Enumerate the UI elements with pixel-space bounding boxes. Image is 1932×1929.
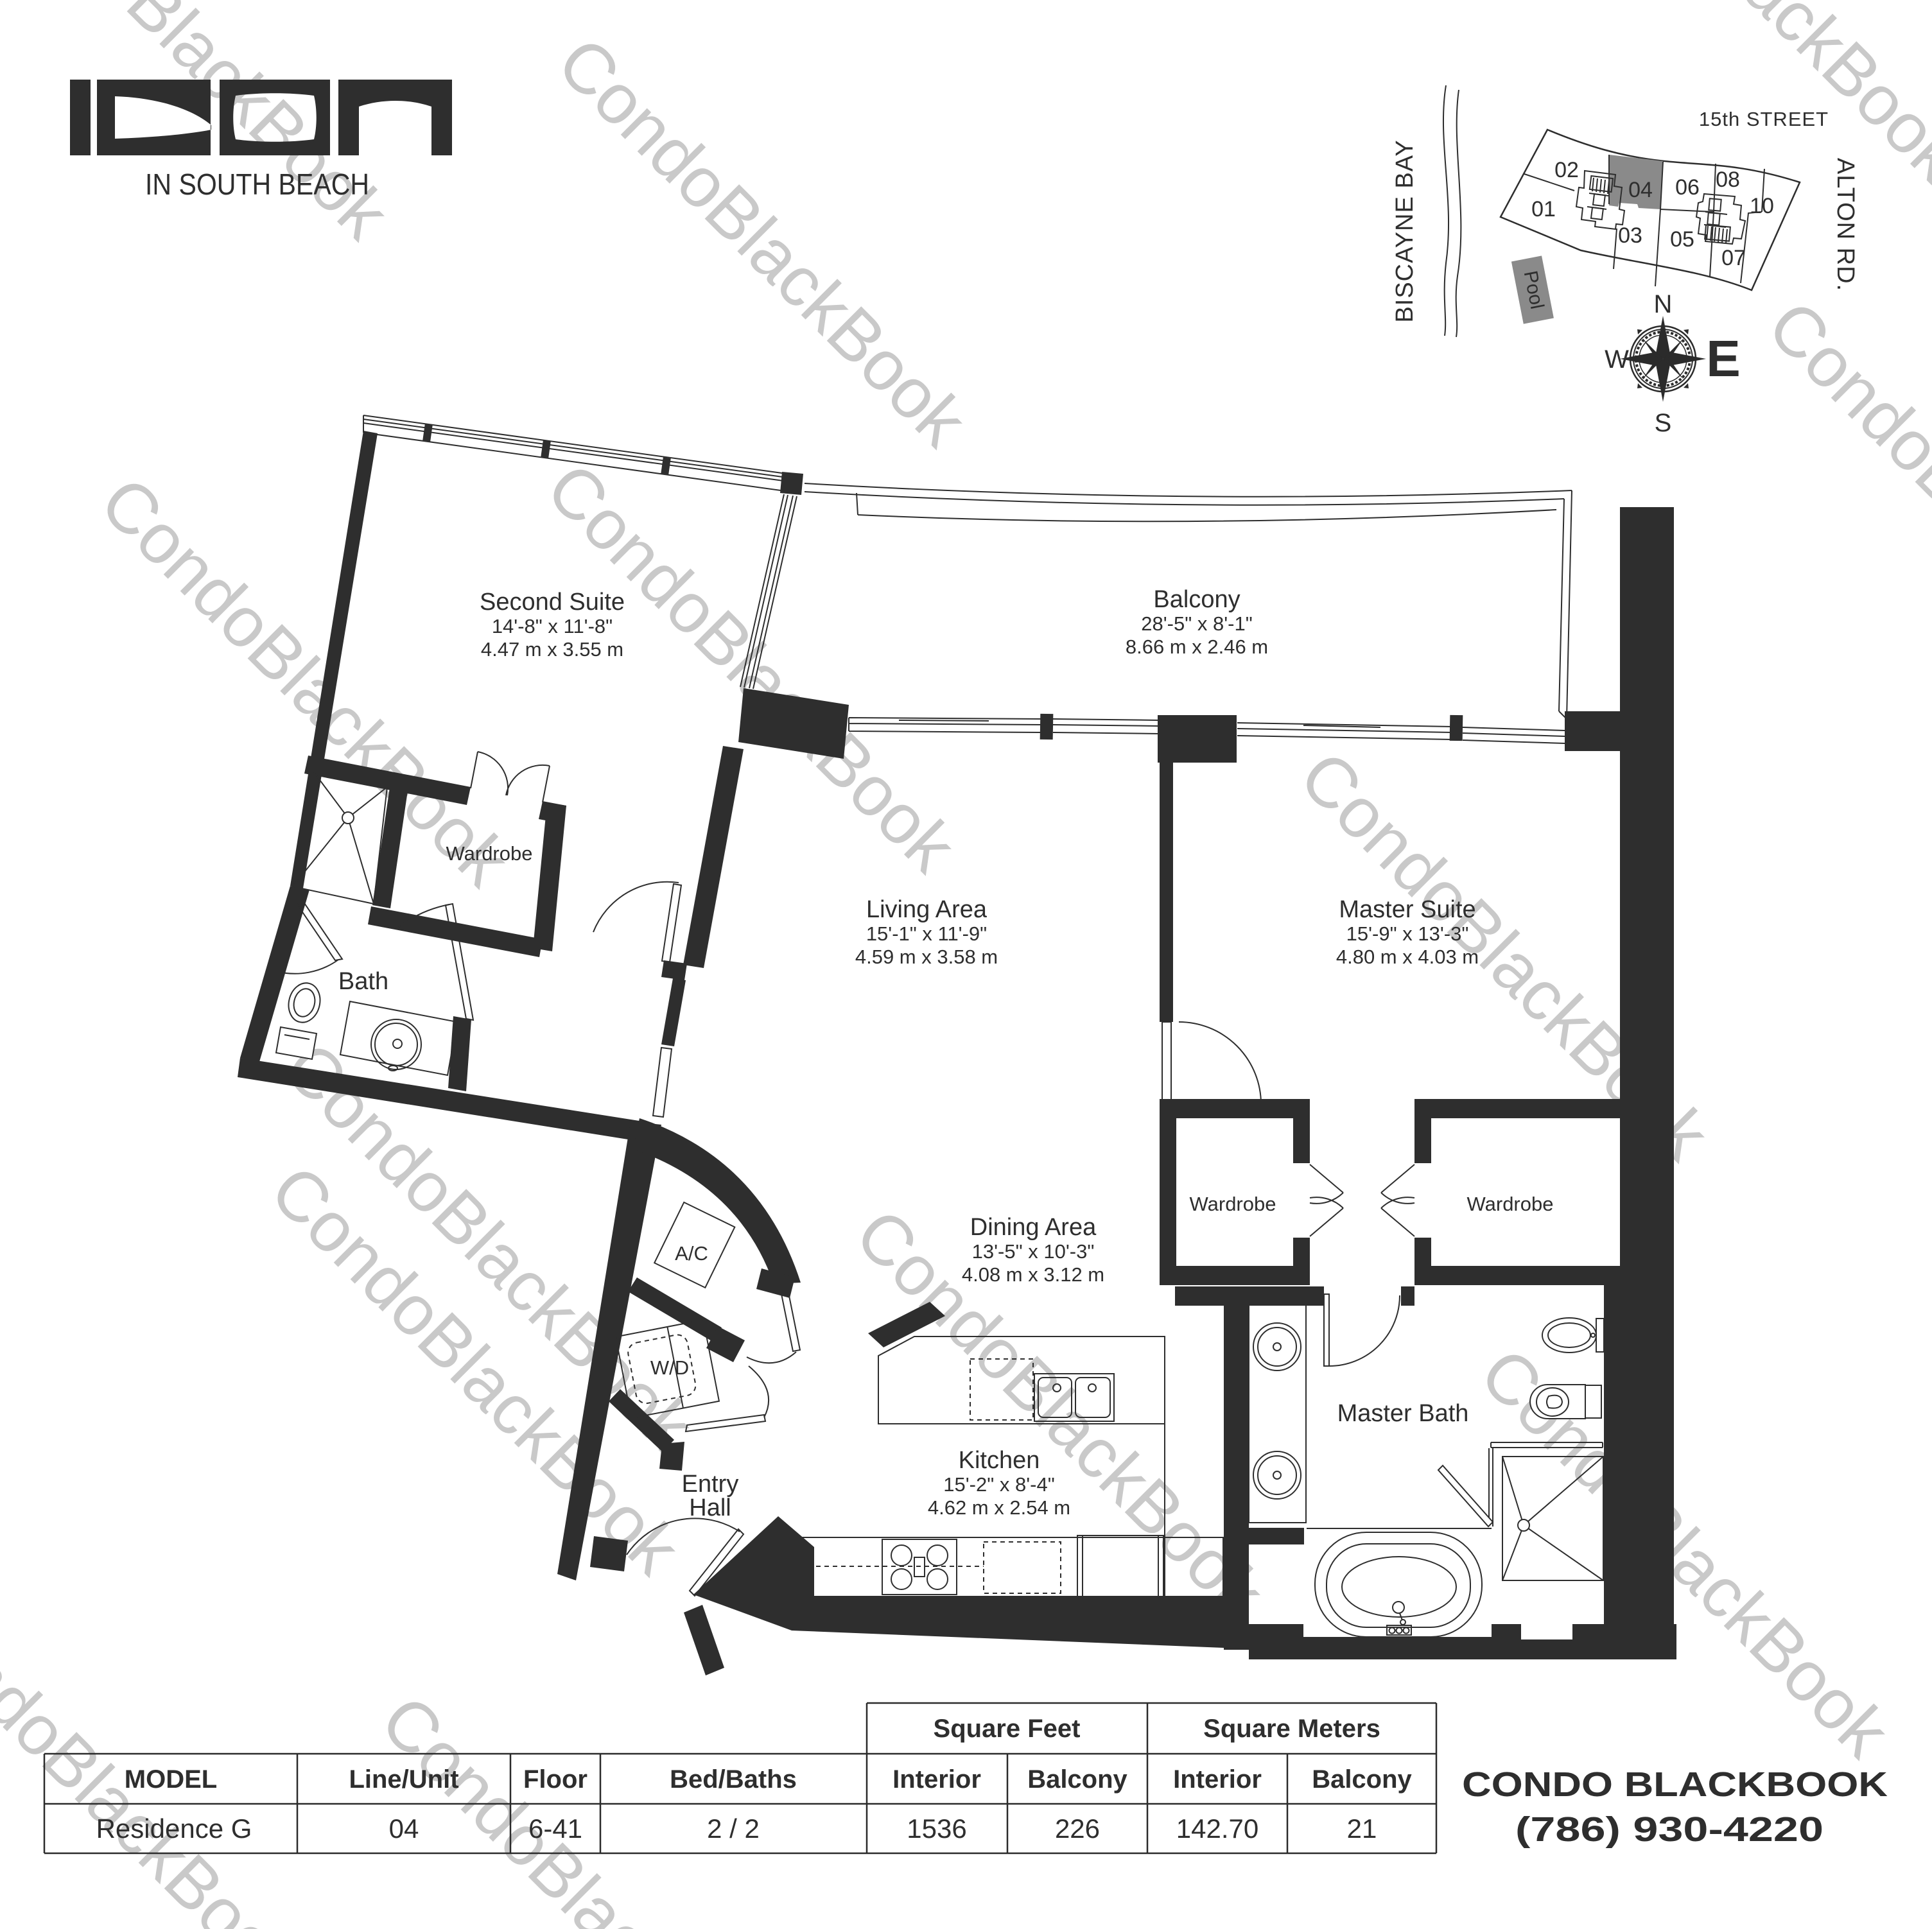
svg-text:Wardrobe: Wardrobe bbox=[1467, 1193, 1554, 1215]
svg-text:MODEL: MODEL bbox=[125, 1765, 217, 1794]
svg-text:04: 04 bbox=[389, 1813, 419, 1844]
svg-text:Entry: Entry bbox=[682, 1471, 739, 1498]
svg-text:S: S bbox=[1655, 409, 1672, 437]
svg-text:Balcony: Balcony bbox=[1312, 1765, 1412, 1794]
svg-text:4.59 m x 3.58 m: 4.59 m x 3.58 m bbox=[855, 946, 998, 968]
svg-text:ALTON RD.: ALTON RD. bbox=[1832, 158, 1859, 291]
svg-text:1536: 1536 bbox=[907, 1813, 966, 1844]
svg-text:Square Meters: Square Meters bbox=[1203, 1715, 1380, 1743]
svg-text:02: 02 bbox=[1554, 158, 1579, 182]
svg-text:05: 05 bbox=[1670, 227, 1694, 252]
svg-text:15'-2" x 8'-4": 15'-2" x 8'-4" bbox=[943, 1473, 1054, 1496]
svg-text:Master Suite: Master Suite bbox=[1339, 896, 1475, 923]
svg-text:4.80 m x 4.03 m: 4.80 m x 4.03 m bbox=[1336, 946, 1479, 968]
svg-text:15th STREET: 15th STREET bbox=[1699, 108, 1829, 130]
svg-text:10: 10 bbox=[1750, 194, 1774, 218]
svg-text:Wardrobe: Wardrobe bbox=[1190, 1193, 1276, 1215]
svg-text:15'-9" x 13'-3": 15'-9" x 13'-3" bbox=[1346, 922, 1469, 945]
svg-text:03: 03 bbox=[1618, 223, 1642, 248]
svg-text:226: 226 bbox=[1055, 1813, 1100, 1844]
svg-text:4.47 m x 3.55 m: 4.47 m x 3.55 m bbox=[481, 638, 623, 661]
svg-text:08: 08 bbox=[1716, 168, 1740, 192]
svg-text:Master Bath: Master Bath bbox=[1337, 1400, 1469, 1427]
svg-text:Balcony: Balcony bbox=[1153, 586, 1240, 613]
svg-text:14'-8" x 11'-8": 14'-8" x 11'-8" bbox=[492, 615, 613, 637]
svg-text:W/D: W/D bbox=[650, 1356, 689, 1379]
svg-text:CONDO BLACKBOOK: CONDO BLACKBOOK bbox=[1462, 1765, 1888, 1804]
svg-text:W: W bbox=[1605, 345, 1629, 374]
svg-text:4.08 m x 3.12 m: 4.08 m x 3.12 m bbox=[962, 1263, 1104, 1286]
svg-text:01: 01 bbox=[1531, 197, 1556, 221]
svg-text:Line/Unit: Line/Unit bbox=[349, 1765, 458, 1794]
svg-text:Interior: Interior bbox=[892, 1765, 981, 1794]
svg-text:07: 07 bbox=[1721, 246, 1746, 270]
svg-text:04: 04 bbox=[1628, 178, 1653, 202]
svg-text:8.66 m x 2.46 m: 8.66 m x 2.46 m bbox=[1126, 636, 1268, 658]
svg-text:N: N bbox=[1654, 290, 1673, 318]
svg-text:Residence G: Residence G bbox=[96, 1813, 252, 1844]
svg-text:Hall: Hall bbox=[689, 1494, 731, 1521]
svg-text:13'-5" x 10'-3": 13'-5" x 10'-3" bbox=[972, 1240, 1095, 1263]
svg-text:E: E bbox=[1706, 330, 1740, 387]
svg-text:Kitchen: Kitchen bbox=[959, 1447, 1040, 1474]
svg-text:A/C: A/C bbox=[675, 1242, 708, 1265]
svg-text:6-41: 6-41 bbox=[528, 1813, 582, 1844]
svg-text:Bath: Bath bbox=[338, 968, 388, 995]
svg-text:Interior: Interior bbox=[1173, 1765, 1262, 1794]
svg-text:06: 06 bbox=[1675, 175, 1700, 200]
svg-text:Square Feet: Square Feet bbox=[934, 1715, 1081, 1743]
svg-text:Floor: Floor bbox=[523, 1765, 587, 1794]
svg-text:28'-5" x 8'-1": 28'-5" x 8'-1" bbox=[1141, 612, 1252, 635]
svg-text:142.70: 142.70 bbox=[1176, 1813, 1258, 1844]
svg-text:Balcony: Balcony bbox=[1027, 1765, 1127, 1794]
svg-text:Wardrobe: Wardrobe bbox=[446, 842, 533, 865]
svg-text:Second Suite: Second Suite bbox=[480, 589, 625, 616]
svg-text:2 / 2: 2 / 2 bbox=[707, 1813, 760, 1844]
svg-text:(786) 930-4220: (786) 930-4220 bbox=[1515, 1810, 1823, 1849]
svg-text:Bed/Baths: Bed/Baths bbox=[670, 1765, 797, 1794]
svg-text:BISCAYNE BAY: BISCAYNE BAY bbox=[1391, 139, 1418, 322]
svg-text:21: 21 bbox=[1347, 1813, 1377, 1844]
svg-text:Living Area: Living Area bbox=[866, 896, 988, 923]
svg-text:IN SOUTH BEACH: IN SOUTH BEACH bbox=[145, 168, 369, 201]
svg-text:Dining Area: Dining Area bbox=[970, 1214, 1097, 1241]
svg-text:15'-1" x 11'-9": 15'-1" x 11'-9" bbox=[866, 922, 987, 945]
svg-text:4.62 m x 2.54 m: 4.62 m x 2.54 m bbox=[928, 1496, 1070, 1519]
